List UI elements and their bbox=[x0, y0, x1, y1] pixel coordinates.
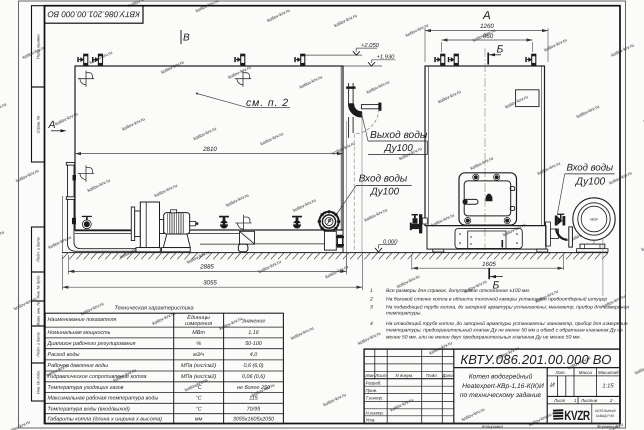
svg-text:115: 115 bbox=[249, 396, 259, 402]
svg-text:см. п. 2: см. п. 2 bbox=[246, 97, 289, 109]
svg-text:Копировал: Копировал bbox=[482, 424, 503, 429]
svg-text:Вход воды: Вход воды bbox=[359, 173, 408, 184]
svg-text:И: И bbox=[550, 382, 555, 389]
svg-text:50-100: 50-100 bbox=[245, 341, 262, 347]
svg-text:А: А bbox=[48, 119, 56, 131]
svg-text:На боковой стенке котла в обла: На боковой стенке котла в области топочн… bbox=[386, 296, 607, 302]
svg-text:N докум.: N докум. bbox=[396, 373, 414, 378]
svg-text:КОТЕЛЬНЫЙ: КОТЕЛЬНЫЙ bbox=[595, 409, 616, 413]
svg-text:0.000: 0.000 bbox=[383, 239, 398, 246]
svg-text:Взам. инв. №: Взам. инв. № bbox=[36, 301, 41, 326]
svg-text:КВЗР: КВЗР bbox=[590, 218, 598, 222]
svg-text:Рабочее давление воды: Рабочее давление воды bbox=[48, 363, 108, 369]
svg-text:Лист: Лист bbox=[374, 373, 387, 378]
svg-text:+2.050: +2.050 bbox=[361, 42, 380, 49]
svg-text:МПа (кгс/см2): МПа (кгс/см2) bbox=[181, 363, 216, 369]
svg-text:Гидравлическое сопротивление к: Гидравлическое сопротивление котла bbox=[48, 374, 147, 380]
svg-text:+1.930: +1.930 bbox=[377, 54, 396, 61]
svg-text:Лит.: Лит. bbox=[554, 370, 565, 375]
svg-text:Подп.: Подп. bbox=[426, 373, 438, 378]
svg-text:1260: 1260 bbox=[480, 23, 494, 30]
svg-text:Инв. № подл.: Инв. № подл. bbox=[36, 370, 41, 394]
svg-text:1: 1 bbox=[370, 288, 373, 294]
svg-text:МПа (кгс/см2): МПа (кгс/см2) bbox=[181, 374, 216, 380]
svg-text:Формат А3: Формат А3 bbox=[597, 424, 621, 429]
svg-text:2885: 2885 bbox=[199, 264, 214, 271]
svg-text:Ду100: Ду100 bbox=[384, 143, 414, 154]
svg-text:ЗАВОД РЭП: ЗАВОД РЭП bbox=[596, 414, 615, 418]
svg-text:Габариты котла (длина х ширина: Габариты котла (длина х ширина х высота) bbox=[48, 417, 163, 423]
svg-text:1:15: 1:15 bbox=[602, 384, 614, 390]
svg-text:Пров.: Пров. bbox=[366, 388, 378, 393]
svg-text:Справ. №: Справ. № bbox=[36, 115, 41, 133]
svg-text:А: А bbox=[482, 10, 491, 22]
svg-text:Инв. № дубл.: Инв. № дубл. bbox=[36, 275, 41, 299]
svg-text:Изм: Изм bbox=[365, 373, 373, 378]
svg-text:1,16: 1,16 bbox=[248, 330, 259, 336]
svg-text:Ду100: Ду100 bbox=[370, 186, 400, 197]
svg-text:2810: 2810 bbox=[202, 146, 217, 153]
svg-text:температуры.: температуры. bbox=[386, 311, 422, 317]
svg-text:Расход воды: Расход воды bbox=[48, 352, 80, 358]
svg-text:Т.контр.: Т.контр. bbox=[366, 396, 384, 401]
svg-text:2: 2 bbox=[369, 296, 373, 302]
svg-text:Котел водогрейный: Котел водогрейный bbox=[469, 374, 533, 381]
svg-text:Подп. и дата: Подп. и дата bbox=[36, 331, 41, 356]
svg-text:Дата: Дата bbox=[441, 373, 454, 378]
svg-text:Максимальная рабочая температу: Максимальная рабочая температура воды bbox=[48, 396, 159, 402]
svg-text:3055: 3055 bbox=[203, 280, 217, 287]
svg-text:Разраб.: Разраб. bbox=[366, 381, 382, 386]
svg-text:°С: °С bbox=[196, 385, 202, 391]
svg-text:%: % bbox=[196, 341, 201, 347]
svg-text:960: 960 bbox=[483, 33, 494, 40]
svg-text:Масштаб: Масштаб bbox=[598, 370, 619, 375]
svg-text:°С: °С bbox=[196, 396, 202, 402]
svg-text:Наименование показателя: Наименование показателя bbox=[48, 317, 117, 323]
svg-text:В: В bbox=[183, 33, 190, 44]
svg-text:Подп. и дата: Подп. и дата bbox=[36, 236, 41, 261]
svg-text:На подводящей трубе котла, д: На подводящей трубе котла, до запорной а… bbox=[386, 304, 629, 310]
svg-text:измерения: измерения bbox=[185, 321, 212, 327]
svg-text:температуры, предохранительный: температуры, предохранительный клапан Ду… bbox=[386, 328, 623, 334]
svg-text:м3/ч: м3/ч bbox=[193, 352, 204, 358]
svg-text:3: 3 bbox=[370, 304, 373, 310]
svg-text:KVZR: KVZR bbox=[564, 408, 590, 423]
svg-text:°С: °С bbox=[196, 406, 202, 412]
svg-text:Утв.: Утв. bbox=[366, 418, 376, 423]
svg-text:Лист: Лист bbox=[553, 398, 566, 403]
svg-text:по техническому задание: по техническому задание bbox=[460, 392, 542, 399]
svg-text:Все размеры для справок, допус: Все размеры для справок, допустимое откл… bbox=[386, 288, 530, 294]
svg-text:На отводящей трубе котла ,до з: На отводящей трубе котла ,до запорной ар… bbox=[386, 321, 628, 327]
svg-text:2: 2 bbox=[609, 398, 613, 403]
svg-text:Выход воды: Выход воды bbox=[370, 130, 428, 141]
svg-text:Масса: Масса bbox=[579, 370, 593, 375]
svg-text:Листов: Листов bbox=[580, 398, 598, 403]
svg-text:Н.контр.: Н.контр. bbox=[366, 410, 385, 415]
svg-text:1605: 1605 bbox=[482, 261, 496, 268]
svg-text:КВТУ.086.201.00.000 ВО: КВТУ.086.201.00.000 ВО bbox=[460, 352, 611, 367]
svg-text:Б: Б bbox=[497, 43, 504, 55]
svg-text:МВт: МВт bbox=[192, 330, 205, 336]
svg-text:Техническая характеристика: Техническая характеристика bbox=[114, 306, 193, 312]
svg-text:Ду100: Ду100 bbox=[575, 177, 606, 188]
svg-text:Heatexpert-КВр-1,16-К(К)И: Heatexpert-КВр-1,16-К(К)И bbox=[462, 383, 544, 390]
svg-text:Номинальная мощность: Номинальная мощность bbox=[48, 330, 111, 336]
svg-text:4: 4 bbox=[370, 321, 373, 327]
svg-text:70/95: 70/95 bbox=[247, 406, 261, 412]
svg-text:Перв. примен.: Перв. примен. bbox=[36, 33, 41, 59]
svg-text:4,0: 4,0 bbox=[250, 352, 258, 358]
svg-text:Вход воды: Вход воды bbox=[567, 162, 614, 173]
svg-text:0,06 (0,6): 0,06 (0,6) bbox=[242, 374, 265, 380]
svg-text:3055х1605х2050: 3055х1605х2050 bbox=[233, 417, 274, 423]
svg-text:мм: мм bbox=[195, 417, 203, 423]
svg-text:Температура воды (вход/выход): Температура воды (вход/выход) bbox=[48, 406, 131, 412]
svg-text:менее 50 мм, или не менее дву: менее 50 мм, или не менее двух предохран… bbox=[386, 334, 582, 340]
svg-text:Температура уходящих газов: Температура уходящих газов bbox=[48, 385, 124, 391]
svg-text:не более 250: не более 250 bbox=[237, 385, 270, 391]
svg-text:0,6 (6,0): 0,6 (6,0) bbox=[243, 363, 263, 369]
svg-text:Диапазон рабочего регулировани: Диапазон рабочего регулирования bbox=[47, 341, 136, 347]
svg-text:Значение: Значение bbox=[242, 319, 266, 325]
svg-text:КВТУ.086.201.00.000 ВО: КВТУ.086.201.00.000 ВО bbox=[47, 10, 140, 19]
